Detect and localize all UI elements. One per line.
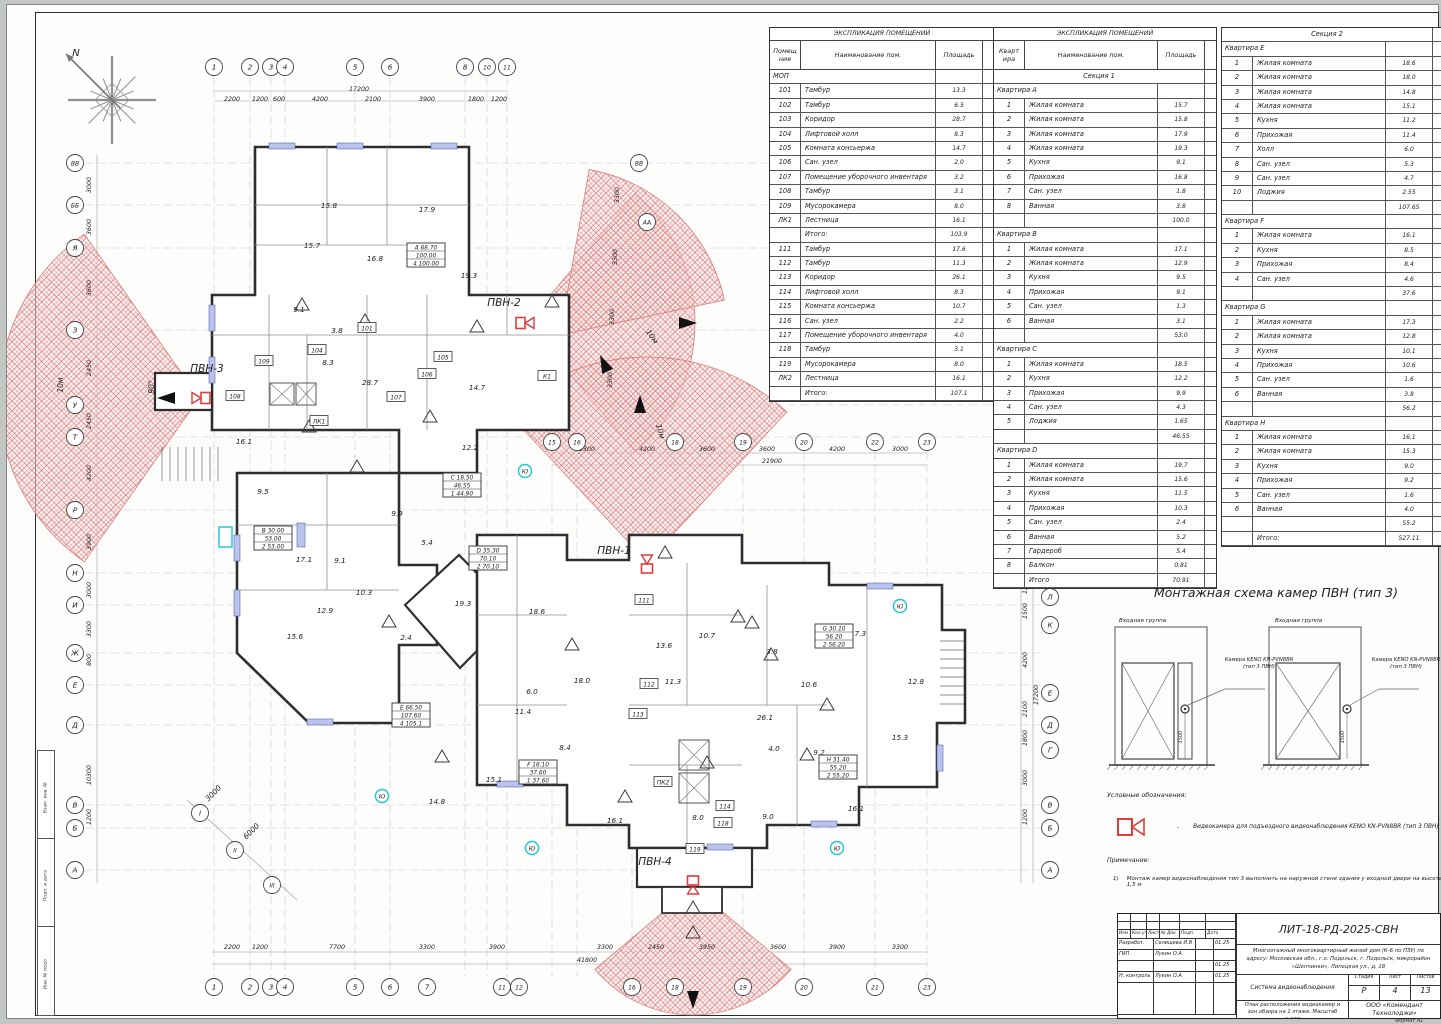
svg-text:15: 15 — [548, 440, 556, 447]
svg-text:2100: 2100 — [365, 96, 381, 103]
subtotal-row: 56.2 — [1222, 402, 1441, 416]
svg-text:А 68.70: А 68.70 — [414, 245, 438, 251]
table-row: 2Жилая комната15.8 — [994, 113, 1216, 127]
svg-text:20: 20 — [800, 985, 808, 992]
svg-text:55.20: 55.20 — [830, 765, 847, 771]
svg-text:8: 8 — [463, 63, 468, 72]
svg-text:20: 20 — [800, 440, 808, 447]
svg-text:9.5: 9.5 — [257, 487, 269, 496]
table-row: 3Кухня9.0 — [1222, 460, 1441, 474]
svg-text:3900: 3900 — [419, 96, 435, 103]
table-row: 3Жилая комната17.9 — [994, 128, 1216, 142]
table-row: 6Прихожая11.4 — [1222, 129, 1441, 143]
table-row: 2Жилая комната18.0 — [1222, 71, 1441, 85]
svg-text:Е: Е — [1048, 689, 1053, 698]
table-header: Кварт ираНаименование пом.Площадь — [994, 41, 1216, 70]
notes-title: Примечание: — [1107, 857, 1441, 864]
svg-text:16.1: 16.1 — [236, 437, 252, 446]
svg-text:1: 1 — [212, 63, 217, 72]
section-row: Квартира В — [994, 228, 1216, 242]
svg-text:108: 108 — [229, 393, 241, 400]
svg-text:Б: Б — [1048, 824, 1053, 833]
svg-text:12.8: 12.8 — [908, 677, 925, 686]
section-row: Квартира G — [1222, 301, 1441, 315]
svg-text:15.6: 15.6 — [287, 632, 304, 641]
table-row: 10Лоджия2.55 — [1222, 186, 1441, 200]
svg-text:ВВ: ВВ — [635, 161, 643, 168]
svg-text:F 16.10: F 16.10 — [527, 762, 549, 768]
legend-dash: - — [1177, 824, 1179, 831]
svg-text:12.9: 12.9 — [317, 606, 334, 615]
svg-text:46.55: 46.55 — [454, 483, 471, 489]
svg-text:4200: 4200 — [1022, 652, 1029, 668]
sheets-value: 13 — [1411, 986, 1440, 1000]
svg-text:16.1: 16.1 — [607, 816, 623, 825]
svg-text:12: 12 — [515, 985, 523, 992]
svg-text:3900: 3900 — [86, 534, 93, 550]
table-row: 119Мусорокамера8.0 — [770, 358, 994, 372]
entry-group-label-2: Входная группа — [1275, 618, 1322, 624]
svg-text:16: 16 — [628, 985, 636, 992]
svg-text:Б: Б — [73, 824, 78, 833]
company-name: ООО «Комендант Технолоджи» — [1348, 1000, 1440, 1018]
table-row: 3Кухня9.5 — [994, 271, 1216, 285]
svg-text:28.7: 28.7 — [362, 378, 379, 387]
table-row: 2Жилая комната12.9 — [994, 257, 1216, 271]
svg-text:3600: 3600 — [699, 446, 715, 453]
svg-text:16: 16 — [573, 440, 581, 447]
svg-text:4200: 4200 — [86, 465, 93, 481]
table-row: 5Сан. узел1.6 — [1222, 373, 1441, 387]
svg-text:2450: 2450 — [86, 413, 93, 429]
svg-text:1500: 1500 — [1022, 603, 1029, 619]
object-description: Многоэтажный многоквартирный жилой дом (… — [1236, 944, 1440, 974]
svg-text:2450: 2450 — [86, 360, 93, 376]
svg-text:АА: АА — [642, 220, 651, 227]
svg-text:56.20: 56.20 — [826, 634, 843, 640]
table-row: 8Ванная3.8 — [994, 200, 1216, 214]
svg-text:16.1: 16.1 — [848, 804, 864, 813]
svg-text:17.1: 17.1 — [296, 555, 312, 564]
svg-text:11: 11 — [503, 65, 511, 72]
table-row: 101Тамбур13.3 — [770, 84, 994, 98]
table-row: 112Тамбур11.3 — [770, 257, 994, 271]
svg-text:41800: 41800 — [577, 957, 597, 964]
section-row: Квартира С — [994, 343, 1216, 357]
svg-text:3000: 3000 — [892, 446, 908, 453]
svg-text:104: 104 — [311, 347, 323, 354]
subtotal-row: 53.0 — [994, 329, 1216, 343]
table-row: 1Жилая комната18.6 — [1222, 57, 1441, 71]
table-row: 8Балкон0.81 — [994, 559, 1216, 573]
svg-text:3: 3 — [269, 63, 274, 72]
svg-text:4: 4 — [283, 63, 288, 72]
svg-text:3600: 3600 — [770, 944, 786, 951]
svg-text:7: 7 — [425, 983, 430, 992]
svg-text:2450: 2450 — [648, 944, 664, 951]
table-row: ЛК2Лестница16.1 — [770, 372, 994, 386]
camera-label-1: Камера KENO KN-PVN8BR (тип 3 ПВН) — [1211, 657, 1307, 670]
svg-text:4200: 4200 — [639, 446, 655, 453]
svg-text:23: 23 — [923, 440, 931, 447]
table-row: 3Прихожая9.9 — [994, 387, 1216, 401]
svg-text:37.60: 37.60 — [530, 770, 547, 776]
table-header: Помещ ниеНаименование пом.Площадь — [770, 41, 994, 70]
svg-text:III: III — [269, 883, 275, 890]
svg-text:107: 107 — [390, 394, 402, 401]
svg-text:21900: 21900 — [762, 458, 782, 465]
svg-text:6: 6 — [388, 63, 393, 72]
table-row: 114Лифтовой холл8.3 — [770, 286, 994, 300]
table-row: 1Жилая комната16.1 — [1222, 431, 1441, 445]
svg-text:119: 119 — [689, 846, 701, 853]
svg-text:Ю: Ю — [529, 845, 536, 852]
svg-text:107.60: 107.60 — [401, 713, 422, 719]
sheet-header: Лист — [1380, 975, 1411, 985]
table-row: 105Комната консьержа14.7 — [770, 142, 994, 156]
revision-table: ИзмКол.учЛист№ ДокПодп.ДатаРазработ.Сели… — [1118, 914, 1236, 1018]
column-header: Площадь — [1158, 41, 1205, 69]
subtotal-row: 55.2 — [1222, 517, 1441, 531]
table-row: 3Кухня10.1 — [1222, 345, 1441, 359]
svg-text:70.10: 70.10 — [480, 556, 497, 562]
stamp-vzam-inv: Взам. инв. № — [37, 750, 55, 840]
svg-text:113: 113 — [632, 711, 644, 718]
svg-text:Н: Н — [72, 569, 78, 578]
svg-text:3000: 3000 — [203, 783, 223, 803]
svg-text:17.9: 17.9 — [419, 205, 436, 214]
table-row: 2Кухня12.2 — [994, 372, 1216, 386]
svg-text:Е 66.50: Е 66.50 — [400, 705, 422, 711]
table-row: 6Ванная4.0 — [1222, 503, 1441, 517]
svg-text:3300: 3300 — [612, 249, 619, 265]
table-row: 4Прихожая10.6 — [1222, 359, 1441, 373]
svg-text:9.1: 9.1 — [334, 556, 346, 565]
table-row: 8Сан. узел5.3 — [1222, 158, 1441, 172]
table-row: 115Комната консьержа10.7 — [770, 300, 994, 314]
svg-text:112: 112 — [643, 681, 655, 688]
svg-text:19: 19 — [739, 985, 747, 992]
explication-table-section1: ЭКСПЛИКАЦИЯ ПОМЕЩЕНИЙКварт ираНаименован… — [993, 27, 1217, 589]
table-row: 109Мусорокамера8.0 — [770, 200, 994, 214]
svg-text:3.8: 3.8 — [331, 326, 343, 335]
table-row: 118Тамбур3.1 — [770, 343, 994, 357]
svg-text:2 55.20: 2 55.20 — [827, 773, 849, 779]
svg-text:5.4: 5.4 — [421, 538, 433, 547]
svg-text:11.4: 11.4 — [515, 707, 532, 716]
svg-text:1800: 1800 — [1022, 730, 1029, 746]
table-row: 6Ванная5.2 — [994, 531, 1216, 545]
svg-text:Ю: Ю — [379, 793, 386, 800]
svg-text:3000: 3000 — [1022, 770, 1029, 786]
table-row: 2Кухня8.5 — [1222, 244, 1441, 258]
table-row: 113Коридор26.1 — [770, 271, 994, 285]
svg-text:Р: Р — [73, 506, 78, 515]
total-row: Итого:107.1 — [770, 387, 994, 401]
camera-icon — [1115, 815, 1149, 839]
svg-text:Ж: Ж — [70, 649, 79, 658]
svg-text:II: II — [233, 848, 237, 855]
table-row: 4Сан. узел4.3 — [994, 401, 1216, 415]
svg-text:ПК2: ПК2 — [657, 779, 670, 786]
svg-text:Е: Е — [73, 681, 78, 690]
svg-text:G 30.10: G 30.10 — [823, 626, 846, 632]
table-row: 1Жилая комната18.5 — [994, 358, 1216, 372]
svg-text:2 53.00: 2 53.00 — [262, 544, 284, 550]
section-row: Квартира D — [994, 444, 1216, 458]
table-row: 106Сан. узел2.0 — [770, 156, 994, 170]
entry-group-label-1: Входная группа — [1119, 618, 1166, 624]
svg-text:Д: Д — [71, 721, 78, 730]
svg-text:18.0: 18.0 — [574, 676, 591, 685]
column-header: Наименование пом. — [1025, 41, 1158, 69]
svg-text:53.00: 53.00 — [265, 536, 282, 542]
table-row: 111Тамбур17.6 — [770, 243, 994, 257]
table-row: 5Сан. узел2.4 — [994, 516, 1216, 530]
svg-text:19.3: 19.3 — [455, 599, 472, 608]
svg-text:1200: 1200 — [86, 809, 93, 825]
column-header: Площадь — [936, 41, 983, 69]
svg-text:4.0: 4.0 — [768, 744, 780, 753]
table-row: 4Прихожая9.2 — [1222, 474, 1441, 488]
svg-text:118: 118 — [717, 820, 729, 827]
svg-text:6.0: 6.0 — [526, 687, 538, 696]
svg-text:Ю: Ю — [897, 603, 904, 610]
svg-text:3950: 3950 — [699, 944, 715, 951]
svg-text:23: 23 — [923, 985, 931, 992]
svg-text:1200: 1200 — [252, 96, 268, 103]
compass-rose: N — [66, 48, 156, 144]
svg-text:ЛК1: ЛК1 — [312, 418, 326, 425]
pvn-camera-label: ПВН-4 — [638, 856, 671, 868]
svg-text:14.7: 14.7 — [469, 383, 486, 392]
svg-text:Н 31.40: Н 31.40 — [827, 757, 850, 763]
svg-text:18.6: 18.6 — [529, 607, 546, 616]
svg-text:А: А — [1047, 866, 1053, 875]
section-row: Квартира А — [994, 84, 1216, 98]
svg-text:I: I — [199, 809, 201, 818]
svg-text:В 30.00: В 30.00 — [262, 528, 285, 534]
notes: Примечание: 1) Монтаж камер видеонаблюде… — [1107, 857, 1441, 888]
svg-text:4200: 4200 — [312, 96, 328, 103]
svg-text:В: В — [73, 801, 78, 810]
svg-text:2 56.20: 2 56.20 — [823, 642, 845, 648]
svg-text:10: 10 — [483, 65, 491, 72]
stage-header: Стадия — [1349, 975, 1380, 985]
svg-text:9.0: 9.0 — [762, 812, 774, 821]
table-row: 4Сан. узел4.6 — [1222, 273, 1441, 287]
svg-text:3300: 3300 — [892, 944, 908, 951]
svg-text:2: 2 — [248, 983, 253, 992]
subtotal-row: 100.0 — [994, 214, 1216, 228]
svg-text:14.8: 14.8 — [429, 797, 446, 806]
svg-text:3300: 3300 — [607, 372, 614, 388]
svg-text:12.2: 12.2 — [462, 443, 479, 452]
svg-text:19: 19 — [739, 440, 747, 447]
svg-text:8.0: 8.0 — [692, 813, 704, 822]
svg-text:2: 2 — [248, 63, 253, 72]
svg-text:ББ: ББ — [71, 203, 79, 210]
table-row: 9Сан. узел4.7 — [1222, 172, 1441, 186]
svg-text:106: 106 — [421, 371, 433, 378]
svg-text:90°: 90° — [147, 380, 156, 394]
svg-text:26.1: 26.1 — [757, 713, 773, 722]
svg-text:8.3: 8.3 — [322, 358, 334, 367]
svg-text:15.3: 15.3 — [892, 733, 909, 742]
svg-text:18: 18 — [671, 440, 679, 447]
svg-text:15.1: 15.1 — [486, 775, 502, 784]
svg-text:1 44.90: 1 44.90 — [451, 491, 473, 497]
table-row: 1Жилая комната17.1 — [994, 243, 1216, 257]
svg-text:В: В — [1048, 801, 1053, 810]
explication-table-mop: ЭКСПЛИКАЦИЯ ПОМЕЩЕНИЙПомещ ниеНаименован… — [769, 27, 995, 402]
svg-text:3.8: 3.8 — [766, 647, 778, 656]
table-row: 1Жилая комната15.7 — [994, 99, 1216, 113]
table-row: 102Тамбур6.5 — [770, 99, 994, 113]
pvn-camera-label: ПВН-3 — [190, 363, 223, 375]
svg-text:15.8: 15.8 — [321, 201, 338, 210]
total-row: Итого:103.9 — [770, 228, 994, 242]
svg-text:D 35.30: D 35.30 — [477, 548, 500, 554]
column-header: Кварт ира — [994, 41, 1025, 69]
column-header: Помещ ние — [770, 41, 801, 69]
svg-text:Я: Я — [72, 244, 78, 253]
svg-text:109: 109 — [258, 358, 270, 365]
table-row: 4Прихожая10.3 — [994, 502, 1216, 516]
svg-text:111: 111 — [638, 597, 649, 604]
svg-text:З: З — [73, 326, 78, 335]
table-row: 3Жилая комната14.8 — [1222, 86, 1441, 100]
table-row: 108Тамбур3.1 — [770, 185, 994, 199]
table-row: 1Жилая комната16.1 — [1222, 229, 1441, 243]
svg-text:10.3: 10.3 — [356, 588, 373, 597]
table-row: 6Прихожая16.8 — [994, 171, 1216, 185]
svg-text:17200: 17200 — [349, 86, 369, 93]
table-row: 116Сан. узел2.2 — [770, 315, 994, 329]
table-row: 2Жилая комната15.6 — [994, 473, 1216, 487]
svg-text:8.4: 8.4 — [559, 743, 571, 752]
svg-text:3300: 3300 — [86, 621, 93, 637]
svg-text:1200: 1200 — [252, 944, 268, 951]
svg-text:Т: Т — [73, 433, 78, 442]
table-row: 2Жилая комната12.8 — [1222, 330, 1441, 344]
svg-text:3000: 3000 — [86, 177, 93, 193]
svg-text:18: 18 — [671, 985, 679, 992]
montage-schema: Монтажная схема камер ПВН (тип 3) Входна… — [1107, 585, 1441, 785]
table-row: 103Коридор28.7 — [770, 113, 994, 127]
table-row: 6Ванная3.1 — [994, 315, 1216, 329]
stage-grid: Стадия Лист Листов Р 4 13 — [1348, 974, 1440, 1000]
svg-text:21: 21 — [871, 985, 879, 992]
svg-text:К1: К1 — [543, 373, 551, 380]
note-number: 1) — [1113, 876, 1119, 888]
svg-text:1800: 1800 — [468, 96, 484, 103]
total-row: Итого:527.11 — [1222, 532, 1441, 546]
svg-text:2200: 2200 — [224, 944, 240, 951]
svg-text:1 37.60: 1 37.60 — [527, 778, 549, 784]
svg-text:22: 22 — [871, 440, 879, 447]
sheet-value: 4 — [1380, 986, 1411, 1000]
svg-text:11: 11 — [498, 985, 506, 992]
svg-text:114: 114 — [719, 803, 731, 810]
montage-title: Монтажная схема камер ПВН (тип 3) — [1107, 585, 1441, 600]
svg-text:16.8: 16.8 — [367, 254, 384, 263]
svg-text:600: 600 — [273, 96, 285, 103]
svg-text:2 70.10: 2 70.10 — [477, 564, 499, 570]
svg-text:6000: 6000 — [241, 821, 261, 841]
table-row: 104Лифтовой холл8.3 — [770, 128, 994, 142]
table-row: 7Гардероб5.4 — [994, 545, 1216, 559]
svg-text:К: К — [1047, 621, 1053, 630]
table-row: 4Жилая комната15.1 — [1222, 100, 1441, 114]
format-label: Формат А1 — [1395, 1018, 1423, 1024]
svg-text:Л: Л — [1046, 593, 1053, 602]
svg-text:2.4: 2.4 — [400, 633, 412, 642]
table-row: 5Сан. узел1.3 — [994, 300, 1216, 314]
svg-text:10м: 10м — [56, 377, 65, 393]
svg-text:А: А — [72, 866, 78, 875]
legend-camera-desc: Видеокамера для подъездного видеонаблюде… — [1193, 824, 1438, 830]
table-row: 5Сан. узел1.6 — [1222, 489, 1441, 503]
subtotal-row: 107.65 — [1222, 201, 1441, 215]
table-row: 5Кухня9.1 — [994, 156, 1216, 170]
pvn-camera-label: ПВН-2 — [487, 297, 521, 309]
table-row: 4Прихожая9.1 — [994, 286, 1216, 300]
svg-text:6: 6 — [388, 983, 393, 992]
section-row: Квартира Н — [1222, 417, 1441, 431]
svg-text:101: 101 — [361, 325, 372, 332]
svg-text:9.1: 9.1 — [293, 305, 305, 314]
table-row: 7Сан. узел1.8 — [994, 185, 1216, 199]
stamp-podp-data: Подп. и дата — [37, 838, 55, 928]
svg-text:11.3: 11.3 — [665, 677, 682, 686]
svg-text:100.00: 100.00 — [416, 253, 437, 259]
stamp-inv-podl: Инв. № подл. — [37, 926, 55, 1016]
svg-text:3300: 3300 — [597, 944, 613, 951]
svg-text:10.6: 10.6 — [801, 680, 818, 689]
column-header: Наименование пом. — [801, 41, 936, 69]
svg-text:800: 800 — [86, 654, 93, 666]
svg-text:И: И — [72, 601, 78, 610]
svg-text:3300: 3300 — [609, 309, 616, 325]
svg-text:3000: 3000 — [86, 582, 93, 598]
table-row: 3Кухня11.5 — [994, 487, 1216, 501]
table-row: 3Прихожая8.4 — [1222, 258, 1441, 272]
svg-text:4 100.00: 4 100.00 — [413, 261, 439, 267]
table-row: 7Холл6.0 — [1222, 143, 1441, 157]
svg-text:5: 5 — [353, 983, 358, 992]
svg-text:3600: 3600 — [86, 280, 93, 296]
svg-text:2200: 2200 — [224, 96, 240, 103]
svg-text:10.7: 10.7 — [699, 631, 716, 640]
table-row: 5Лоджия1.65 — [994, 415, 1216, 429]
svg-text:3300: 3300 — [419, 944, 435, 951]
svg-text:4 105.1: 4 105.1 — [400, 721, 422, 727]
svg-text:105: 105 — [437, 354, 449, 361]
svg-text:5: 5 — [353, 63, 358, 72]
svg-text:19.3: 19.3 — [461, 271, 478, 280]
subtotal-row: 46.55 — [994, 430, 1216, 444]
legend: Условные обозначения: - Видеокамера для … — [1107, 791, 1441, 839]
svg-text:С 18.50: С 18.50 — [451, 475, 474, 481]
svg-text:3900: 3900 — [489, 944, 505, 951]
camera-label-2: Камера KENO KN-PVN8BR (тип 3 ПВН) — [1365, 657, 1441, 670]
note-text: Монтаж камер видеонаблюдения тип 3 выпол… — [1127, 876, 1441, 888]
table-row: 107Помещение уборочного инвентаря3.2 — [770, 171, 994, 185]
svg-text:3600: 3600 — [759, 446, 775, 453]
svg-text:15.7: 15.7 — [304, 241, 321, 250]
svg-text:1200: 1200 — [491, 96, 507, 103]
